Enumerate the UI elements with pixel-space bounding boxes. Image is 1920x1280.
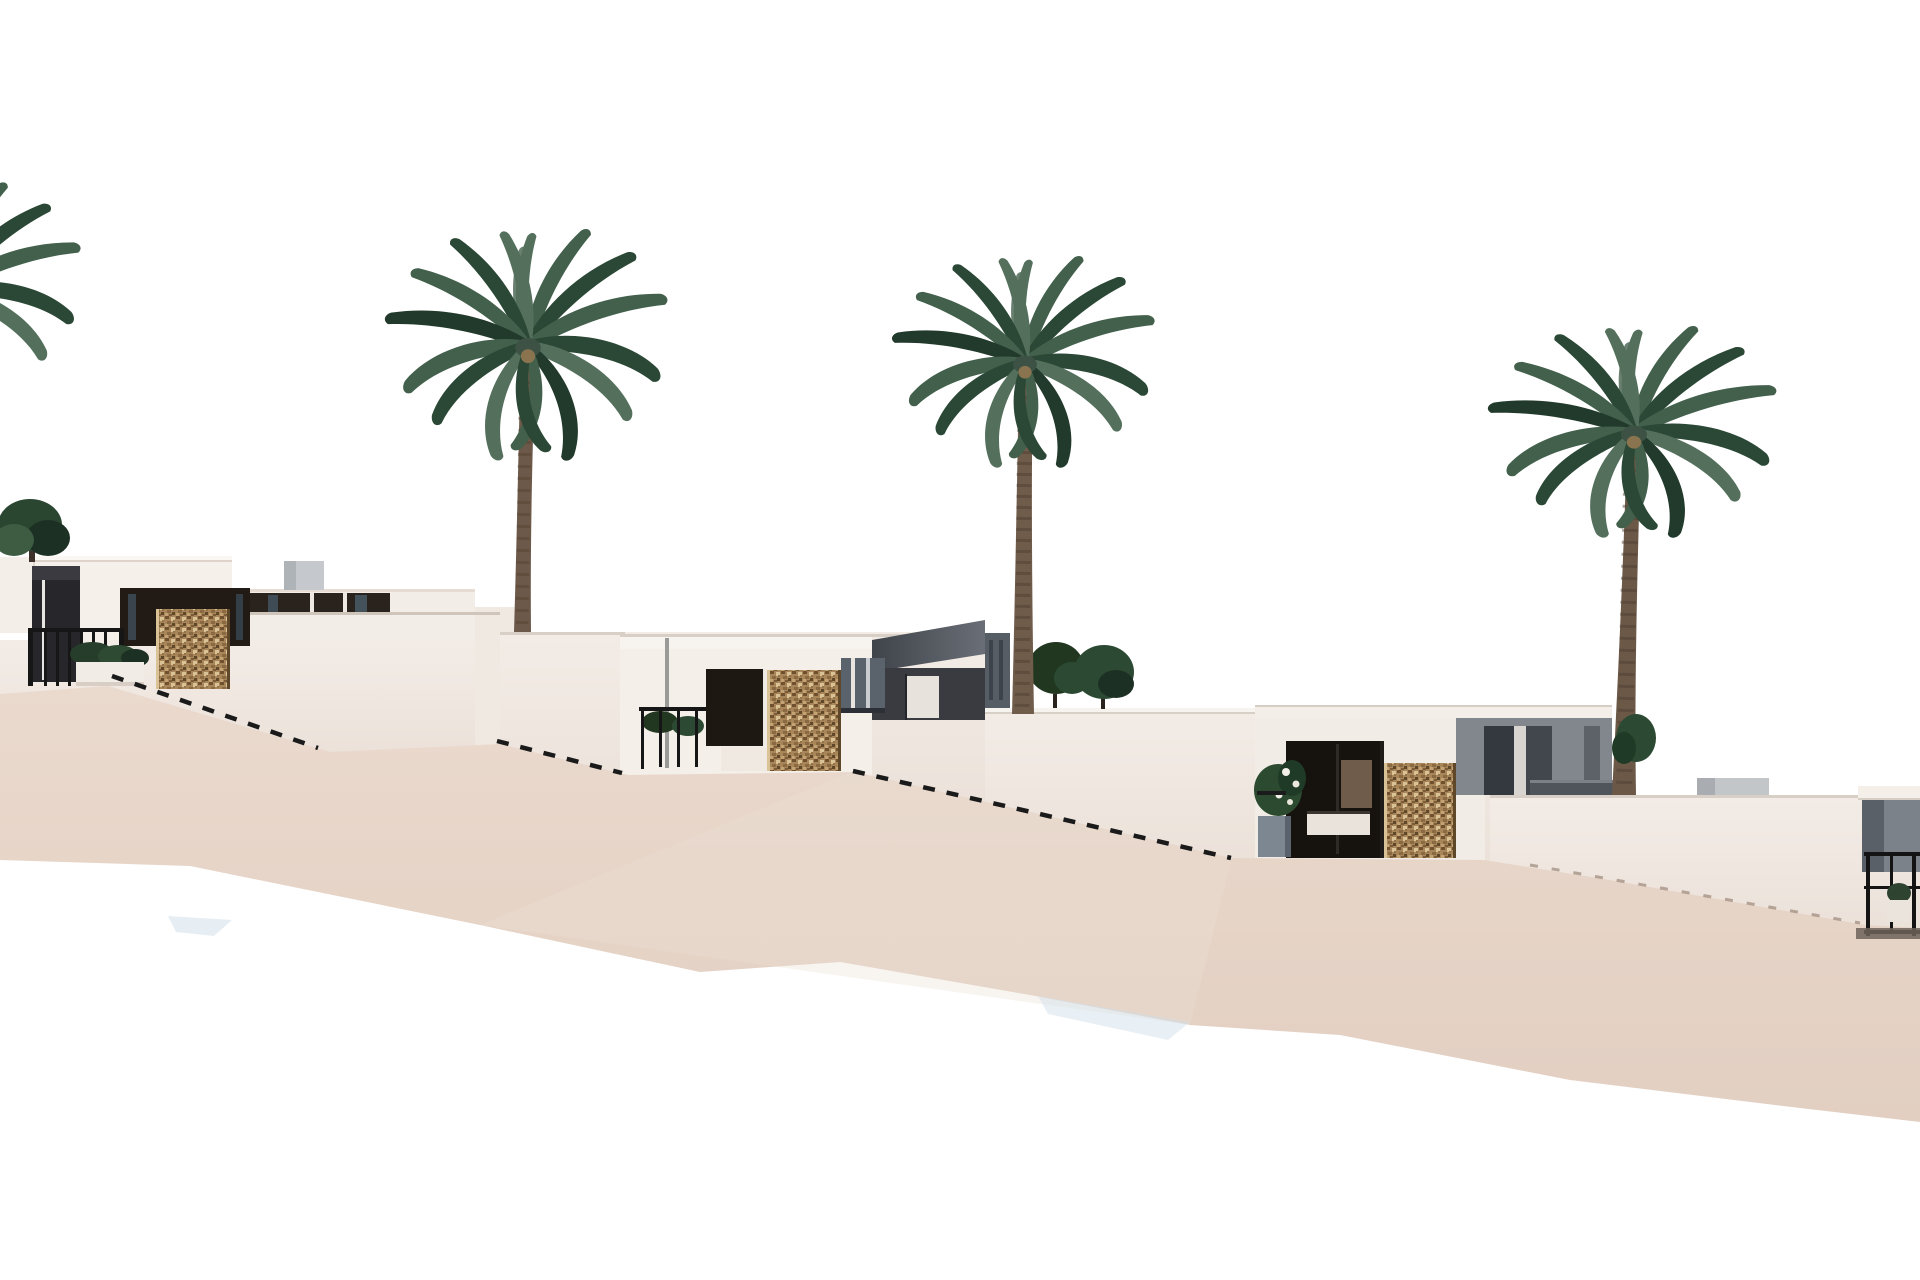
glass-reflection [268,595,278,612]
render-canvas [0,0,1920,1280]
far-villa-gray-wall-shade [1862,800,1884,872]
window-sill [230,612,500,615]
wall-top-edge-4 [1490,795,1920,798]
end-wall-slit [999,640,1003,700]
architectural-render [0,0,1920,1280]
window-mullion [310,593,314,614]
left-villa-roof-edge [35,560,232,562]
door-frame [905,674,907,720]
white-step [721,747,771,771]
stone-pillar-middle [767,670,841,771]
stone-pillar-right [1384,763,1456,858]
far-villa-roof-band [1858,786,1920,800]
far-villa-roof-line [1858,798,1920,800]
end-wall-slit [989,640,993,700]
middle-villa-parapet [620,637,872,649]
stone-pillar-left [156,609,230,689]
entry-glass-reflection [236,594,243,640]
porch-railing [1257,791,1286,795]
porch-post [1380,741,1384,858]
wall-top-edge-2 [500,632,625,635]
gray-roof-slab-highlight [1530,780,1614,783]
wing-roof-edge [232,589,475,592]
entry-recess [706,669,764,746]
white-planter-shade [76,682,144,686]
left-villa-side-wall [0,557,35,633]
entry-column-top [32,566,80,580]
glass-reflection [355,595,367,612]
recess-mullion [763,669,767,746]
window-mullion [343,593,347,614]
far-villa-ground-shadow [1856,928,1920,939]
rooftop-box-far-shade [1697,778,1715,795]
downpipe-pole [665,638,669,768]
gray-glazing-band [841,658,885,713]
palm-offshoot [1612,732,1636,764]
right-villa-roof-slab [1255,707,1612,718]
porch-recess [1286,741,1384,858]
entry-glass-reflection [128,594,136,640]
gray-end-wall [985,633,1010,708]
white-door [907,676,939,718]
right-villa-roof-line [1255,705,1612,707]
render-page [0,0,1920,1280]
rooftop-box-shade [284,561,296,590]
left-villa-parapet [35,556,232,560]
far-villa-planter [1887,900,1911,922]
